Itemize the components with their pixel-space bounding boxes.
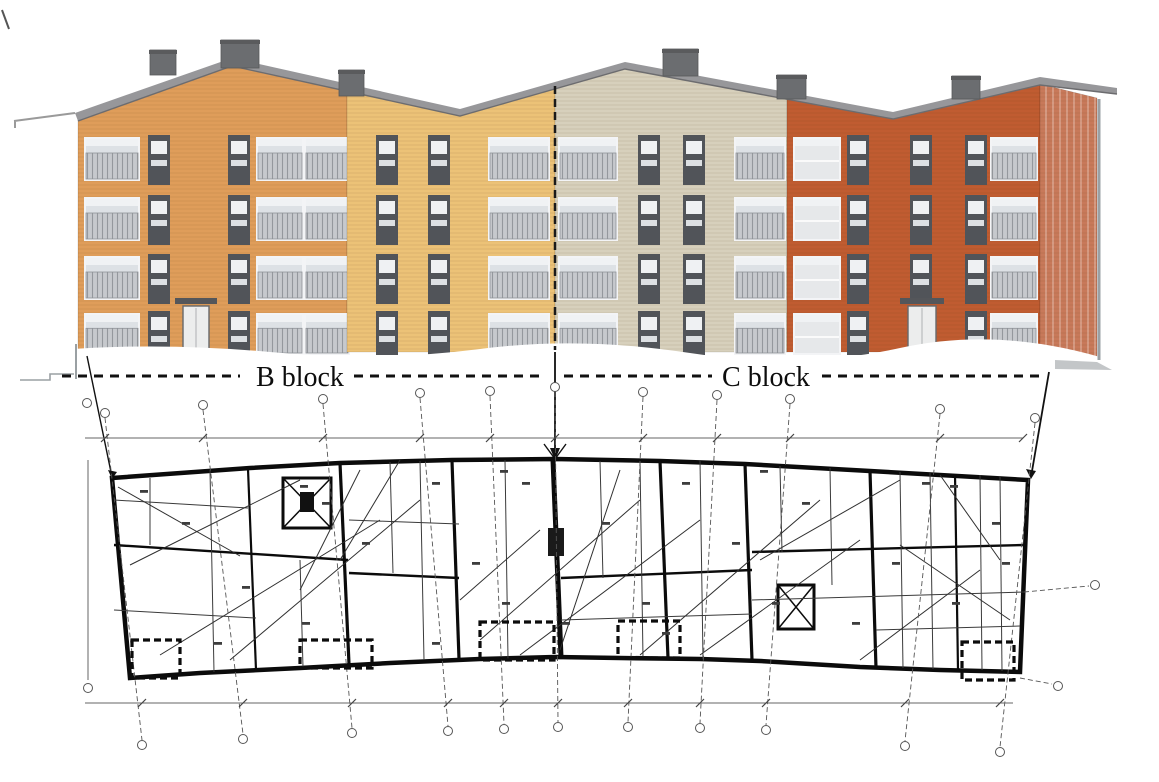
large-window <box>793 313 841 355</box>
balcony-window <box>84 256 140 300</box>
narrow-window <box>376 311 398 355</box>
grid-bubble <box>762 726 771 735</box>
large-window <box>793 137 841 181</box>
narrow-window <box>910 254 932 304</box>
dimension-text-blob <box>992 522 1000 525</box>
grid-bubble <box>786 395 795 404</box>
narrow-window <box>638 195 660 245</box>
facade-section-beige <box>555 68 787 355</box>
chimney <box>951 76 981 99</box>
dimension-text-blob <box>242 586 250 589</box>
grid-bubble <box>901 742 910 751</box>
facade-section-rust <box>787 84 1040 355</box>
narrow-window <box>228 135 250 185</box>
balcony-window <box>488 197 550 241</box>
dimension-text-blob <box>302 622 310 625</box>
chimney <box>776 75 807 99</box>
grid-bubble <box>83 399 92 408</box>
dimension-text-blob <box>952 602 960 605</box>
grid-bubble <box>348 729 357 738</box>
balcony-window <box>558 197 618 241</box>
dimension-text-blob <box>140 490 148 493</box>
grid-bubble <box>936 405 945 414</box>
balcony-window <box>734 256 786 300</box>
facade-section-yellow <box>347 83 555 355</box>
balcony-window <box>304 313 350 355</box>
large-window <box>793 256 841 300</box>
narrow-window <box>965 195 987 245</box>
balcony-window <box>304 256 350 300</box>
grid-bubble <box>1091 581 1100 590</box>
narrow-window <box>965 254 987 304</box>
narrow-window <box>847 135 869 185</box>
grid-bubble <box>199 401 208 410</box>
dimension-text-blob <box>562 622 570 625</box>
grid-bubble <box>696 724 705 733</box>
narrow-window <box>847 195 869 245</box>
narrow-window <box>376 195 398 245</box>
dimension-text-blob <box>682 482 690 485</box>
door-canopy <box>900 298 944 304</box>
narrow-window <box>683 311 705 355</box>
grid-bubble <box>1031 414 1040 423</box>
building-elevation <box>75 40 1117 360</box>
narrow-window <box>638 254 660 304</box>
grid-bubble <box>713 391 722 400</box>
dimension-text-blob <box>300 485 308 488</box>
narrow-window <box>683 195 705 245</box>
narrow-window <box>228 254 250 304</box>
grid-bubble <box>554 723 563 732</box>
right-leader-arrow <box>1026 469 1036 479</box>
narrow-window <box>847 311 869 355</box>
narrow-window <box>910 195 932 245</box>
dimension-text-blob <box>182 522 190 525</box>
narrow-window <box>910 135 932 185</box>
narrow-window <box>847 254 869 304</box>
dimension-text-blob <box>802 502 810 505</box>
balcony-window <box>990 137 1038 181</box>
narrow-window <box>228 195 250 245</box>
balcony-window <box>256 197 304 241</box>
dimension-text-blob <box>760 470 768 473</box>
grid-bubble <box>1054 682 1063 691</box>
balcony-window <box>488 256 550 300</box>
c-block-label: C block <box>722 362 810 393</box>
grid-bubble <box>416 389 425 398</box>
facade-section-orange <box>78 66 350 355</box>
floor-plan <box>83 383 1100 757</box>
balcony-window <box>734 197 786 241</box>
narrow-window <box>965 135 987 185</box>
dimension-text-blob <box>892 562 900 565</box>
narrow-window <box>428 195 450 245</box>
narrow-window <box>376 135 398 185</box>
dimension-line <box>85 699 1013 707</box>
grid-bubble <box>551 383 560 392</box>
dimension-line <box>85 434 1027 442</box>
facade-section-return <box>1040 84 1097 360</box>
dimension-text-blob <box>214 642 222 645</box>
grid-bubble <box>639 388 648 397</box>
dimension-text-blob <box>642 602 650 605</box>
grid-bubble <box>101 409 110 418</box>
dimension-text-blob <box>602 522 610 525</box>
chimney <box>662 49 699 76</box>
left-roof-stub <box>14 113 75 128</box>
grid-bubble <box>319 395 328 404</box>
chimney <box>338 70 365 96</box>
narrow-window <box>428 135 450 185</box>
corner-tick-mark <box>2 10 9 29</box>
balcony-window <box>84 137 140 181</box>
grid-bubble <box>444 727 453 736</box>
balcony-window <box>256 313 304 355</box>
balcony-window <box>990 256 1038 300</box>
b-block-label: B block <box>256 362 344 393</box>
dimension-text-blob <box>732 542 740 545</box>
grid-bubble <box>239 735 248 744</box>
narrow-window <box>428 311 450 355</box>
balcony-window <box>734 313 786 355</box>
chimney <box>149 50 177 75</box>
balcony-window <box>304 137 350 181</box>
narrow-window <box>376 254 398 304</box>
balcony-window <box>990 197 1038 241</box>
grid-bubble <box>624 723 633 732</box>
narrow-window <box>683 135 705 185</box>
dimension-text-blob <box>322 502 330 505</box>
door-canopy <box>175 298 217 304</box>
figure-building-elevation-and-plan: B block C block <box>0 0 1159 782</box>
dimension-text-blob <box>432 642 440 645</box>
dimension-text-blob <box>662 632 670 635</box>
narrow-window <box>148 195 170 245</box>
grid-bubble <box>138 741 147 750</box>
dimension-text-blob <box>852 622 860 625</box>
dimension-text-blob <box>772 602 780 605</box>
balcony-window <box>558 137 618 181</box>
narrow-window <box>148 135 170 185</box>
grid-bubble <box>500 725 509 734</box>
narrow-window <box>228 311 250 355</box>
narrow-window <box>638 135 660 185</box>
dimension-text-blob <box>1002 562 1010 565</box>
balcony-window <box>256 256 304 300</box>
dimension-text-blob <box>502 602 510 605</box>
figure-canvas: B block C block <box>0 0 1159 782</box>
dimension-text-blob <box>950 485 958 488</box>
dimension-text-blob <box>472 562 480 565</box>
grid-bubble <box>996 748 1005 757</box>
dimension-text-blob <box>362 542 370 545</box>
narrow-window <box>428 254 450 304</box>
balcony-window <box>558 256 618 300</box>
balcony-window <box>304 197 350 241</box>
balcony-window <box>488 137 550 181</box>
balcony-window <box>734 137 786 181</box>
chimney <box>220 40 260 68</box>
right-leader-line <box>1031 372 1049 477</box>
grid-bubble <box>486 387 495 396</box>
grid-bubble <box>84 684 93 693</box>
narrow-window <box>683 254 705 304</box>
balcony-window <box>256 137 304 181</box>
large-window <box>793 197 841 241</box>
dimension-text-blob <box>432 482 440 485</box>
narrow-window <box>148 254 170 304</box>
dimension-text-blob <box>522 482 530 485</box>
dimension-text-blob <box>922 482 930 485</box>
dimension-text-blob <box>500 470 508 473</box>
balcony-window <box>84 197 140 241</box>
